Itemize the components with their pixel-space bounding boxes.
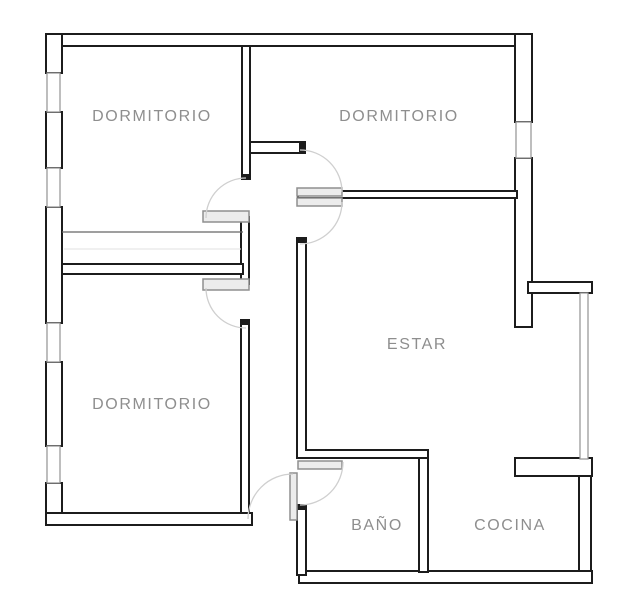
wall-right-seg-2 [515,158,532,327]
window-left-3 [47,323,60,362]
wall-left-seg-2 [46,112,62,168]
floorplan-drawing [0,0,644,611]
wall-right-lower [579,476,591,583]
room-label-bano: BAÑO [351,517,403,535]
wall-left-seg-4 [46,362,62,446]
wall-bottom [299,571,592,583]
wall-dormitorio-bl-right [241,320,249,513]
room-label-dormitorio-top-right: DORMITORIO [339,108,459,126]
wall-extension-top [528,282,592,293]
door-leaf-dormitorio-top-left [203,211,249,222]
window-right-cocina [580,293,588,459]
door-leaf-bano-inner [298,461,342,469]
room-label-cocina: COCINA [474,517,546,535]
windows-group [47,73,588,483]
door-swing-arc-bano-hall-side [248,474,293,519]
wall-cap-dormitorio-bl-top [240,319,250,325]
wall-cap-estar-left-top [296,237,306,243]
room-label-estar: ESTAR [387,336,447,354]
door-leaf-estar [297,198,342,206]
floorplan-canvas: DORMITORIO DORMITORIO DORMITORIO ESTAR B… [0,0,644,611]
room-label-dormitorio-top-left: DORMITORIO [92,108,212,126]
window-left-1 [47,73,60,112]
window-right-top [516,122,531,158]
counter-bar [515,458,592,476]
door-leaf-bano-hall-side [290,473,297,520]
wall-bano-left-lower [297,505,306,575]
window-left-4 [47,446,60,483]
wall-cap-stub-end [299,141,305,154]
wall-left-seg-1 [46,34,62,73]
door-leaf-dormitorio-top-right [297,188,342,196]
wall-hall-left [242,46,250,179]
door-swing-arc-dormitorio-top-right [300,150,342,192]
wall-divider-left-dormitorios [62,264,243,274]
wall-hall-stub [250,142,305,153]
door-leaf-dormitorio-bottom-left [203,279,249,290]
wall-right-seg-1 [515,34,532,122]
window-left-2 [47,168,60,207]
wall-bottom-left-room [46,513,252,525]
wall-left-seg-3 [46,207,62,323]
room-label-dormitorio-bottom-left: DORMITORIO [92,396,212,414]
wall-top [46,34,532,46]
wall-bano-right [419,458,428,572]
wall-cap-hall-left-end [241,174,250,180]
